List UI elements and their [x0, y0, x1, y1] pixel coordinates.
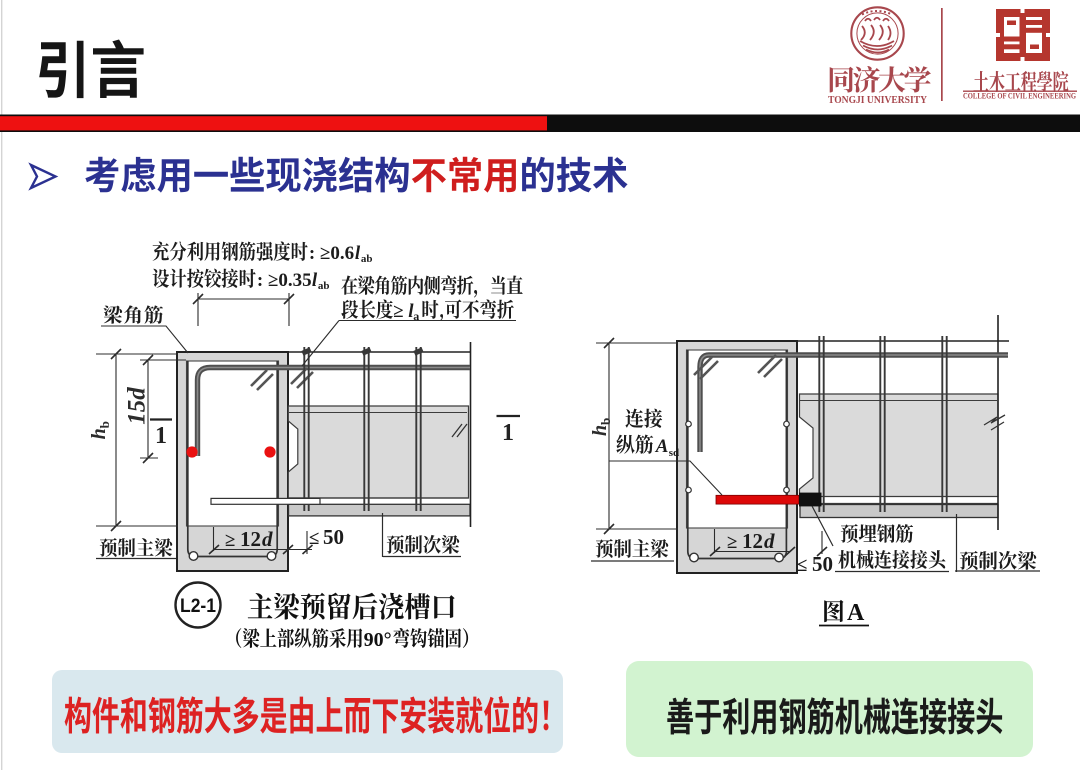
svg-text:1: 1 — [155, 423, 167, 449]
svg-text:≥: ≥ — [393, 301, 403, 322]
svg-text:d: d — [764, 529, 775, 553]
svg-text:COLLEGE OF CIVIL ENGINEERING: COLLEGE OF CIVIL ENGINEERING — [963, 92, 1076, 101]
svg-text:: ≥0.35: : ≥0.35 — [257, 270, 312, 291]
svg-text:12: 12 — [240, 527, 261, 551]
svg-text:≥: ≥ — [727, 532, 737, 553]
svg-text:A: A — [847, 600, 865, 626]
svg-text:1: 1 — [502, 420, 514, 446]
svg-text:L2-1: L2-1 — [180, 596, 216, 617]
svg-text:h: h — [589, 425, 611, 436]
svg-text:ab: ab — [318, 280, 330, 292]
svg-text:15d: 15d — [124, 387, 151, 425]
svg-text:≥: ≥ — [225, 530, 235, 551]
svg-text:≤: ≤ — [309, 528, 319, 549]
svg-text:TONGJI UNIVERSITY: TONGJI UNIVERSITY — [828, 95, 927, 106]
svg-text:b: b — [598, 418, 613, 425]
svg-text:d: d — [262, 527, 273, 551]
svg-text:12: 12 — [742, 529, 763, 553]
svg-text:: ≥0.6: : ≥0.6 — [309, 243, 354, 264]
svg-text:50: 50 — [812, 552, 833, 576]
svg-text:90°: 90° — [364, 629, 392, 651]
svg-text:≤: ≤ — [797, 555, 807, 576]
svg-text:A: A — [655, 436, 669, 457]
svg-text:50: 50 — [323, 525, 344, 549]
svg-text:ab: ab — [361, 253, 373, 265]
svg-text:sd: sd — [669, 447, 679, 459]
svg-text:b: b — [97, 421, 112, 428]
svg-text:h: h — [88, 428, 110, 439]
